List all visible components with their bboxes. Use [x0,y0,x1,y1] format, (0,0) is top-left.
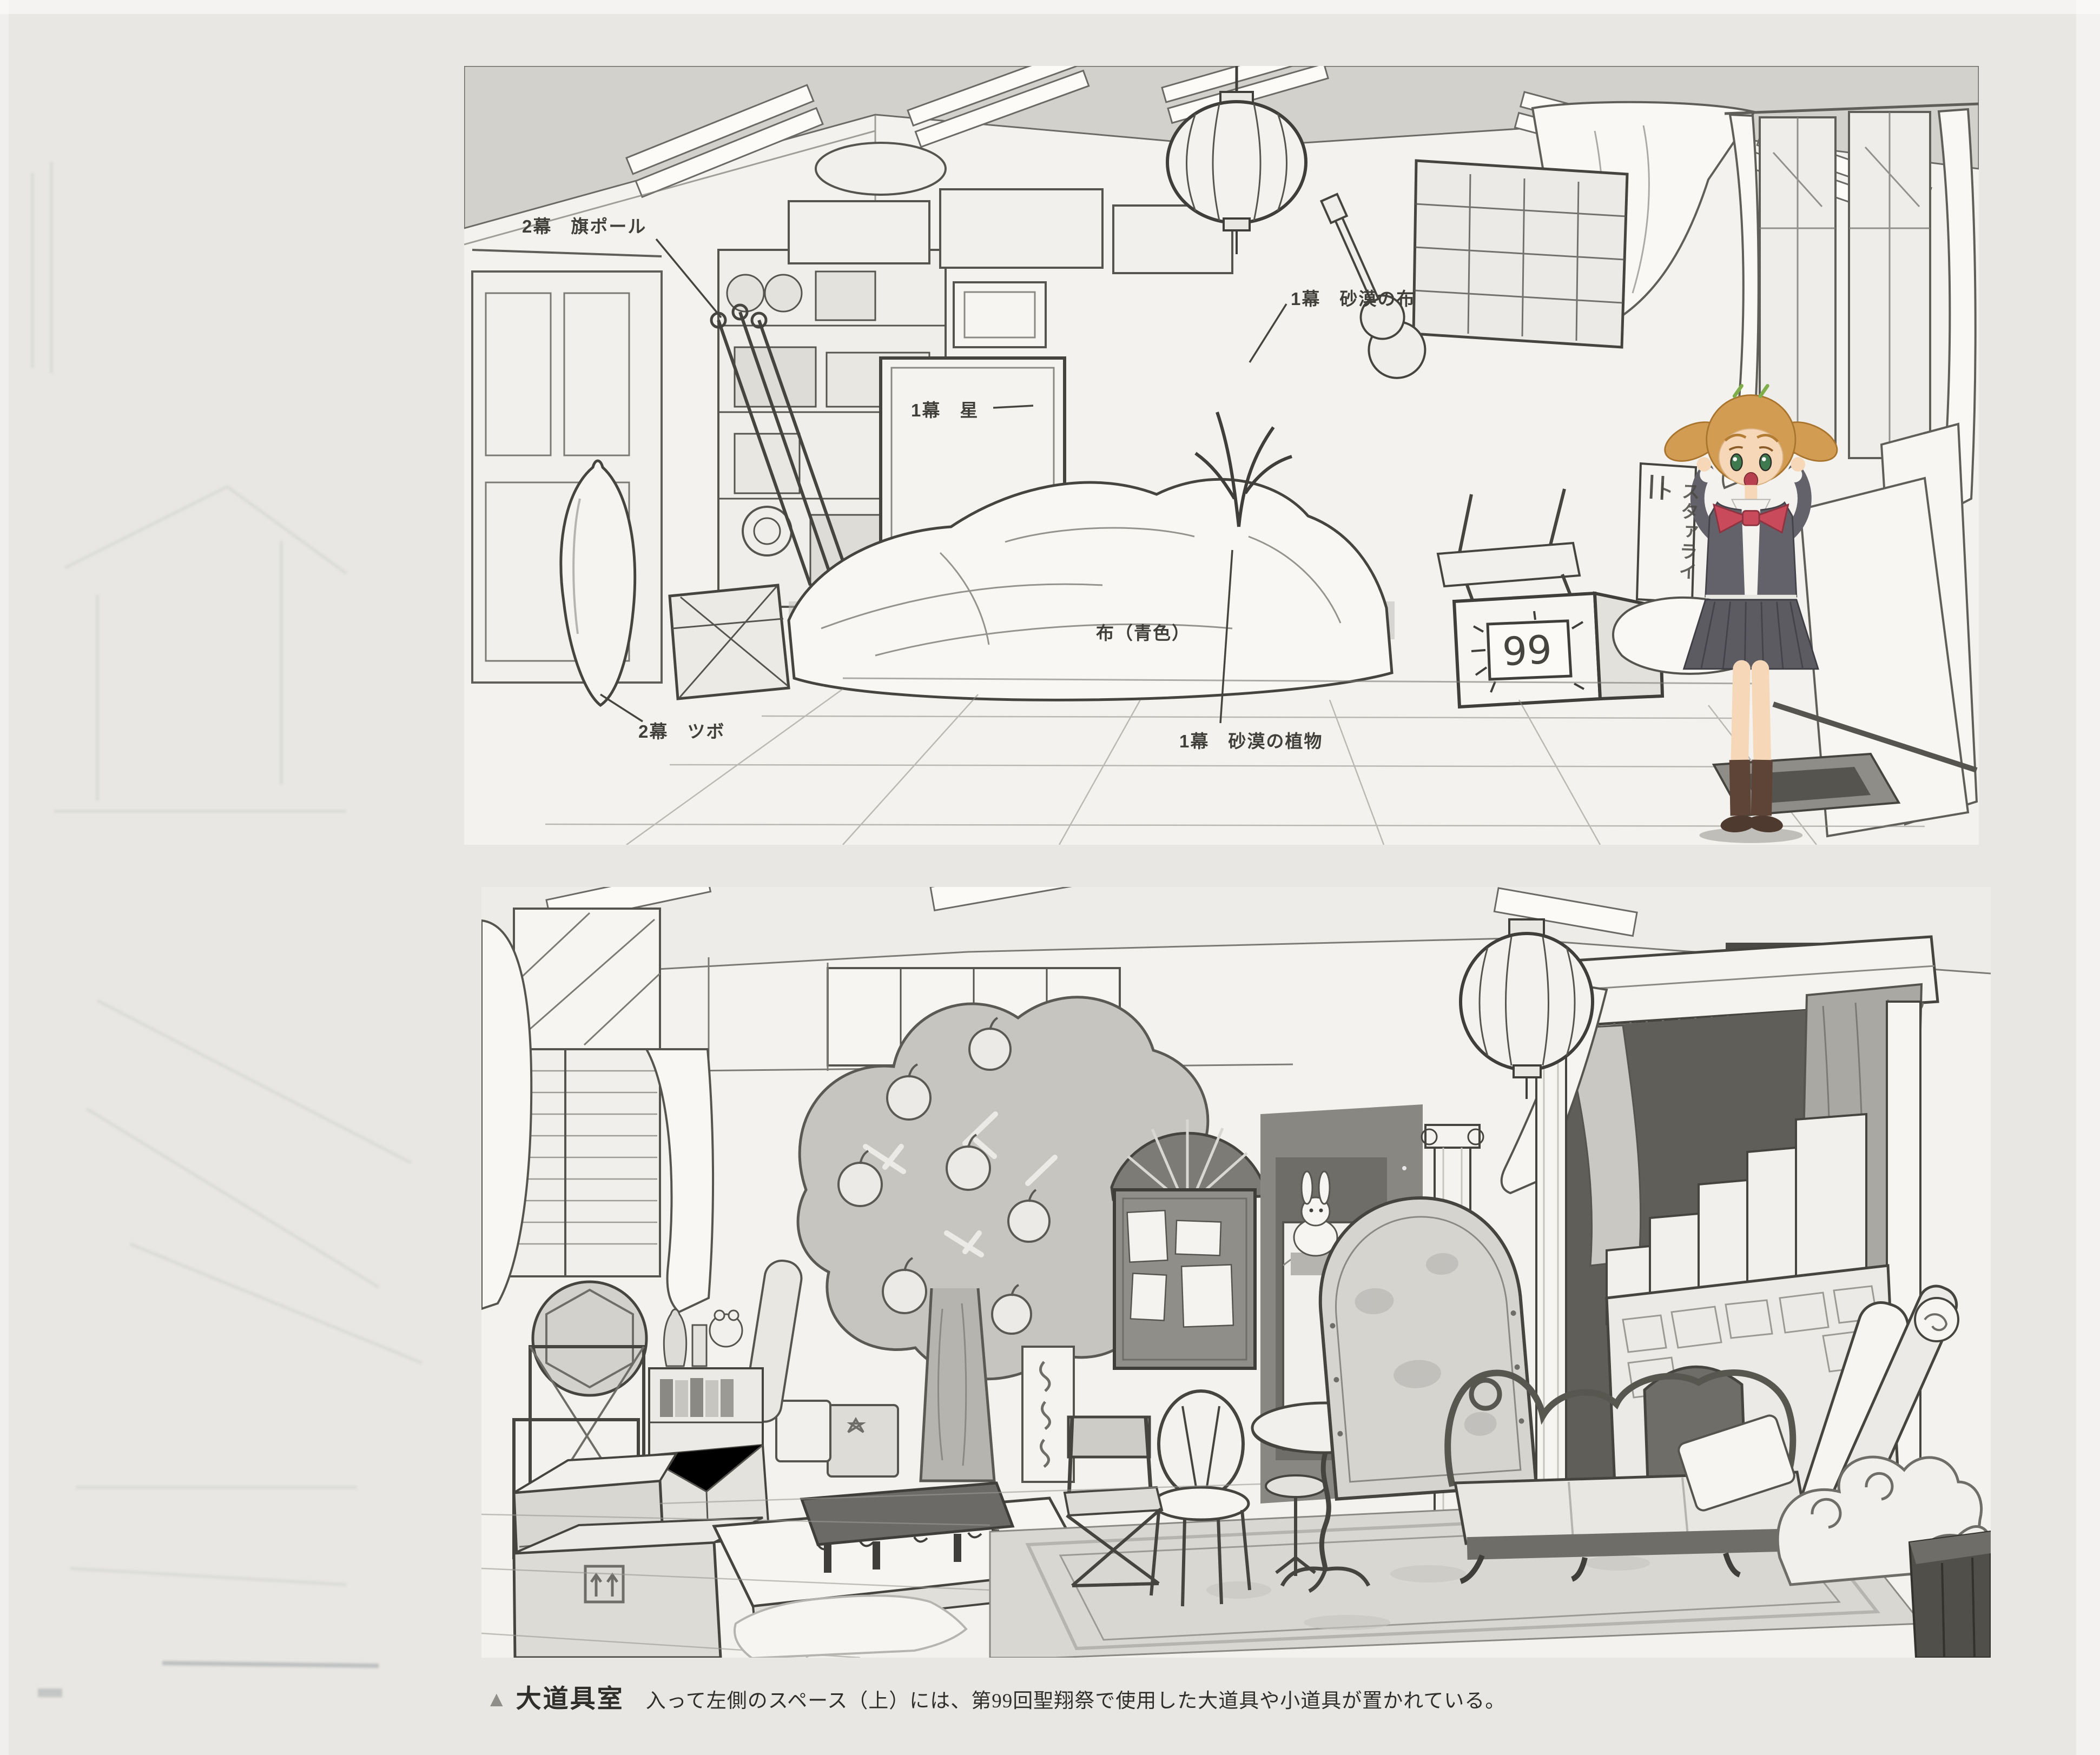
annotation-label-star: 1幕 星 [911,396,979,422]
annotation-label-desert-plant: 1幕 砂漠の植物 [1179,727,1323,753]
artbook-page: 99 [0,0,2100,1755]
bottom-illustration [481,887,1991,1658]
caption-triangle-icon: ▲ [486,1687,507,1712]
scan-edge-top [0,0,2100,14]
figure-caption: ▲ 大道具室 入って左側のスペース（上）には、第99回聖翔祭で使用した大道具や小… [486,1678,1505,1715]
annotation-label-pot: 2幕 ツボ [638,717,725,743]
scan-edge-left [0,0,9,1755]
starlight-poster-text: スタァライト [1646,480,1702,598]
annotation-label-desert-cloth: 1幕 砂漠の布 [1291,284,1415,310]
scan-edge-right [2076,0,2100,1755]
props-room-art [481,887,1991,1658]
caption-body: 入って左側のスペース（上）には、第99回聖翔祭で使用した大道具や小道具が置かれて… [646,1684,1506,1713]
annotation-label-flag-pole: 2幕 旗ポール [522,212,646,238]
crate-number: 99 [1501,627,1553,675]
annotation-label-cloth-blue: 布（青色） [1096,619,1191,645]
page-showthrough-ghost [0,0,465,1755]
top-illustration: 99 [464,66,1979,845]
caption-title: 大道具室 [516,1678,624,1715]
